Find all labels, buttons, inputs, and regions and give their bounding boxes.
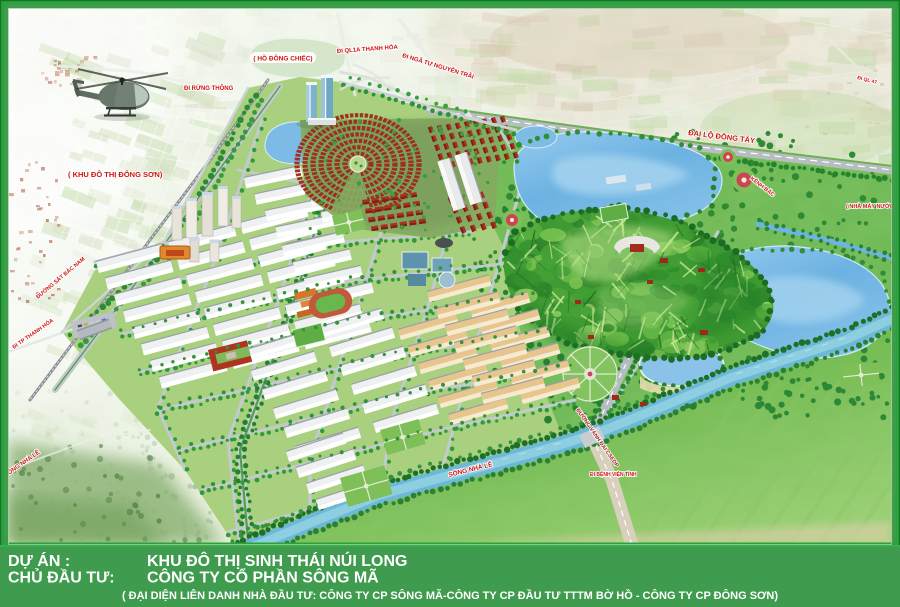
svg-text:ĐI RỪNG THÔNG: ĐI RỪNG THÔNG [184,84,234,92]
svg-text:( NHÀ MÁY NƯỚC): ( NHÀ MÁY NƯỚC) [846,202,896,210]
svg-text:CHỦ ĐẦU TƯ:: CHỦ ĐẦU TƯ: [8,568,115,587]
svg-text:CÔNG TY CỔ PHẦN SÔNG MÃ: CÔNG TY CỔ PHẦN SÔNG MÃ [147,567,379,587]
svg-text:DỰ ÁN :: DỰ ÁN : [8,551,70,570]
svg-text:ĐI BỆNH VIỆN TỈNH: ĐI BỆNH VIỆN TỈNH [590,470,637,478]
svg-text:( KHU ĐÔ THỊ ĐÔNG SƠN): ( KHU ĐÔ THỊ ĐÔNG SƠN) [68,170,163,179]
svg-text:( ĐẠI DIỆN LIÊN DANH NHÀ ĐẦU T: ( ĐẠI DIỆN LIÊN DANH NHÀ ĐẦU TƯ: CÔNG TY… [122,589,778,602]
svg-text:KHU ĐÔ THỊ SINH THÁI NÚI LONG: KHU ĐÔ THỊ SINH THÁI NÚI LONG [147,551,407,570]
